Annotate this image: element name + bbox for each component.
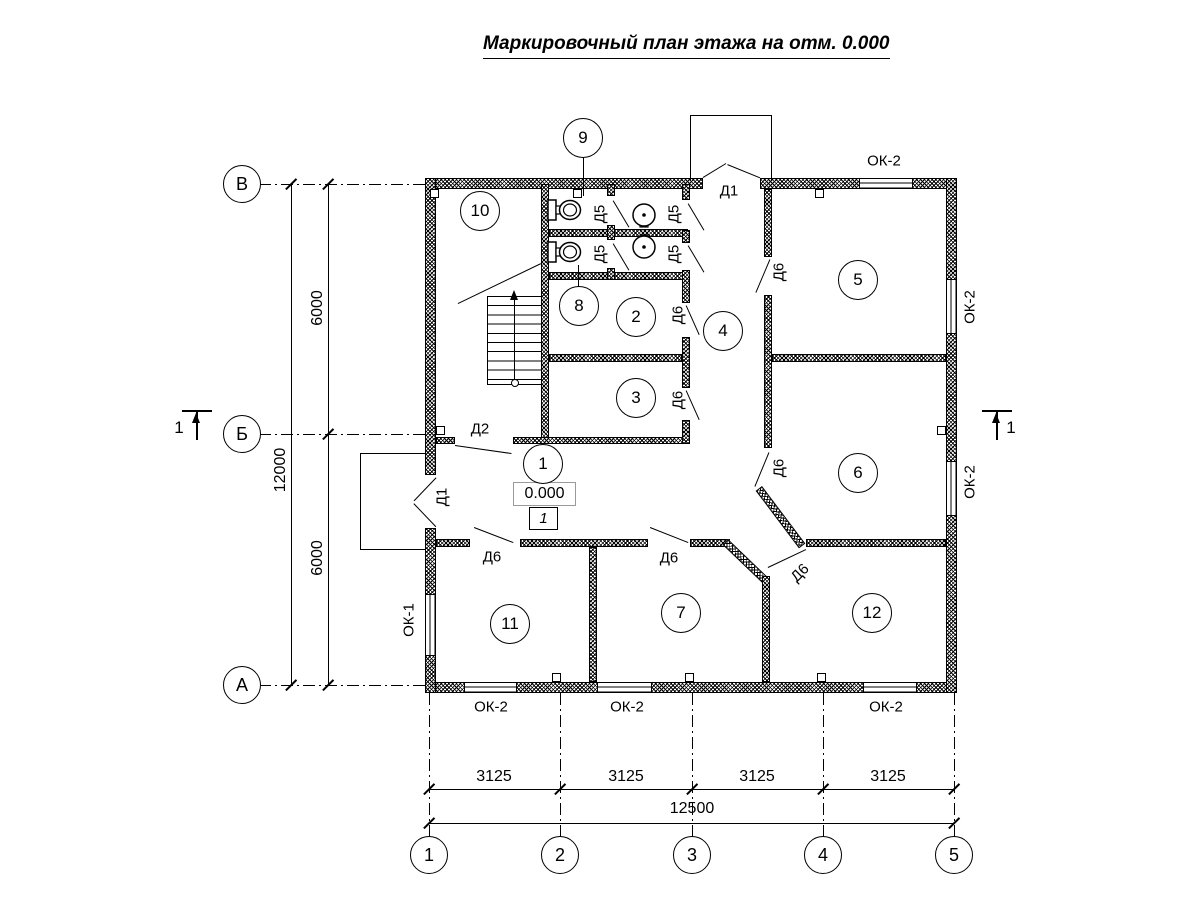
partition xyxy=(549,229,688,237)
door-mark-label: Д6 xyxy=(670,306,687,325)
partition xyxy=(764,189,772,257)
section-arrow-icon xyxy=(192,413,200,423)
window-ok2-top xyxy=(860,178,912,189)
axis-line-v xyxy=(259,184,425,185)
door-leaf-d6 xyxy=(755,259,770,293)
pilaster-mark xyxy=(552,673,561,682)
wall-bottom xyxy=(651,682,864,693)
floor-plan-canvas: Маркировочный план этажа на отм. 0.000 xyxy=(0,0,1200,900)
room-number-circle: 1 xyxy=(523,444,563,484)
window-ok2-right-1 xyxy=(946,280,957,333)
door-leaf-d2 xyxy=(455,445,512,454)
stair-edge xyxy=(487,296,488,385)
partition-diagonal xyxy=(722,539,767,583)
sink-icon xyxy=(630,203,658,259)
partition xyxy=(682,337,690,388)
window-mark-label: ОК-2 xyxy=(610,699,644,716)
stair-direction-arrow xyxy=(510,290,518,300)
wall-top xyxy=(425,178,703,189)
door-mark-label: Д1 xyxy=(720,183,739,200)
dimension-text: 6000 xyxy=(309,290,327,326)
partition xyxy=(436,437,455,444)
pilaster-mark xyxy=(937,426,946,435)
room-number-circle: 9 xyxy=(563,118,603,158)
partition xyxy=(607,184,615,196)
partition xyxy=(607,268,615,280)
axis-line-4 xyxy=(823,693,824,838)
dimension-text: 3125 xyxy=(476,768,512,786)
elevation-mark: 0.000 xyxy=(513,482,576,506)
partition xyxy=(436,539,470,547)
dimension-text: 12500 xyxy=(670,800,715,818)
room-number-circle: 4 xyxy=(703,311,743,351)
door-leaf-d5 xyxy=(687,203,704,230)
door-leaf-d6 xyxy=(685,390,699,420)
floor-number: 1 xyxy=(539,510,547,527)
window-mark-label: ОК-2 xyxy=(867,153,901,170)
room-number-circle: 5 xyxy=(838,260,878,300)
dimension-text: 6000 xyxy=(309,540,327,576)
door-mark-label: Д5 xyxy=(666,205,683,224)
axis-line-b xyxy=(259,434,436,435)
partition xyxy=(607,225,615,240)
axis-bubble: 3 xyxy=(673,836,711,874)
axis-bubble: 1 xyxy=(410,836,448,874)
door-leaf-d6 xyxy=(685,305,699,335)
partition xyxy=(513,437,690,444)
window-mark-label: ОК-2 xyxy=(474,699,508,716)
axis-line-2 xyxy=(560,693,561,838)
partition xyxy=(762,576,770,682)
wall-bottom xyxy=(516,682,598,693)
partition xyxy=(682,420,690,444)
room-number-circle: 8 xyxy=(559,286,599,326)
section-number: 1 xyxy=(174,418,183,438)
door-mark-label: Д6 xyxy=(660,550,679,567)
dimension-text: 3125 xyxy=(870,768,906,786)
door-mark-label: Д1 xyxy=(434,488,451,507)
window-mark-label: ОК-2 xyxy=(869,699,903,716)
door-mark-label: Д6 xyxy=(771,263,788,282)
section-number: 1 xyxy=(1006,418,1015,438)
door-mark-label: Д5 xyxy=(666,245,683,264)
partition xyxy=(682,230,690,243)
door-leaf-d6 xyxy=(754,452,769,487)
door-mark-label: Д5 xyxy=(592,245,609,264)
room-number-circle: 7 xyxy=(661,593,701,633)
door-leaf-d5 xyxy=(612,243,629,270)
window-mark-label: ОК-2 xyxy=(962,465,979,499)
window-ok1-left xyxy=(425,595,436,655)
toilet-icon xyxy=(547,239,583,265)
wall-left xyxy=(425,655,436,693)
door-mark-label: Д2 xyxy=(471,421,490,438)
pilaster-mark xyxy=(815,189,824,198)
entrance-porch-left xyxy=(360,453,425,550)
window-ok2-bottom-1 xyxy=(465,682,516,693)
entrance-porch-top xyxy=(690,115,772,181)
partition xyxy=(520,539,648,547)
axis-bubble: А xyxy=(223,666,261,704)
door-leaf-d5 xyxy=(612,200,629,227)
dimension-text: 3125 xyxy=(739,768,775,786)
axis-bubble: 5 xyxy=(935,836,973,874)
door-leaf-d5 xyxy=(687,245,704,272)
dim-line-12000 xyxy=(291,184,292,685)
room-number-circle: 11 xyxy=(490,604,530,644)
page-title: Маркировочный план этажа на отм. 0.000 xyxy=(483,33,890,59)
room-number-circle: 12 xyxy=(852,593,892,633)
elevation-value: 0.000 xyxy=(524,485,564,503)
partition xyxy=(682,270,690,303)
partition xyxy=(772,354,946,362)
stair-walk-line xyxy=(514,294,515,384)
stair-start-circle xyxy=(511,379,519,387)
wall-right xyxy=(946,178,957,280)
door-mark-label: Д6 xyxy=(670,391,687,410)
window-mark-label: ОК-1 xyxy=(401,603,418,637)
partition xyxy=(806,539,946,547)
room-9-leader xyxy=(583,155,584,196)
wall-top xyxy=(760,178,860,189)
axis-bubble: Б xyxy=(223,415,261,453)
window-mark-label: ОК-2 xyxy=(962,290,979,324)
toilet-icon xyxy=(547,197,583,223)
room-number-circle: 2 xyxy=(616,297,656,337)
section-arrow-icon xyxy=(992,413,1000,423)
room-8-leader xyxy=(578,265,579,288)
door-leaf-d6 xyxy=(650,527,689,543)
dim-line-12500 xyxy=(429,823,954,824)
door-leaf-d6 xyxy=(474,527,514,543)
window-ok2-right-2 xyxy=(946,462,957,515)
wall-right xyxy=(946,515,957,693)
partition xyxy=(549,354,682,362)
wall-right xyxy=(946,333,957,462)
partition-diagonal xyxy=(756,486,806,548)
axis-bubble: В xyxy=(223,165,261,203)
room-number-circle: 6 xyxy=(838,453,878,493)
window-ok2-bottom-2 xyxy=(598,682,651,693)
axis-line-1 xyxy=(429,693,430,838)
partition xyxy=(589,547,597,682)
axis-line-5 xyxy=(954,693,955,838)
pilaster-mark xyxy=(430,189,439,198)
axis-bubble: 2 xyxy=(541,836,579,874)
room-number-circle: 3 xyxy=(616,378,656,418)
room-number-circle: 10 xyxy=(460,191,500,231)
axis-bubble: 4 xyxy=(804,836,842,874)
axis-line-a xyxy=(259,685,425,686)
door-mark-label: Д6 xyxy=(483,549,502,566)
wall-left xyxy=(425,178,436,475)
partition xyxy=(764,295,772,448)
dimension-text: 12000 xyxy=(272,448,290,493)
pilaster-mark xyxy=(436,426,445,435)
door-mark-label: Д5 xyxy=(592,205,609,224)
window-ok2-bottom-3 xyxy=(864,682,916,693)
door-mark-label: Д6 xyxy=(787,560,812,585)
pilaster-mark xyxy=(817,673,826,682)
floor-number-badge: 1 xyxy=(529,507,558,530)
pilaster-mark xyxy=(685,673,694,682)
door-mark-label: Д6 xyxy=(771,459,788,478)
partition xyxy=(549,272,688,280)
dimension-text: 3125 xyxy=(608,768,644,786)
wall-left xyxy=(425,528,436,595)
partition xyxy=(682,184,690,200)
